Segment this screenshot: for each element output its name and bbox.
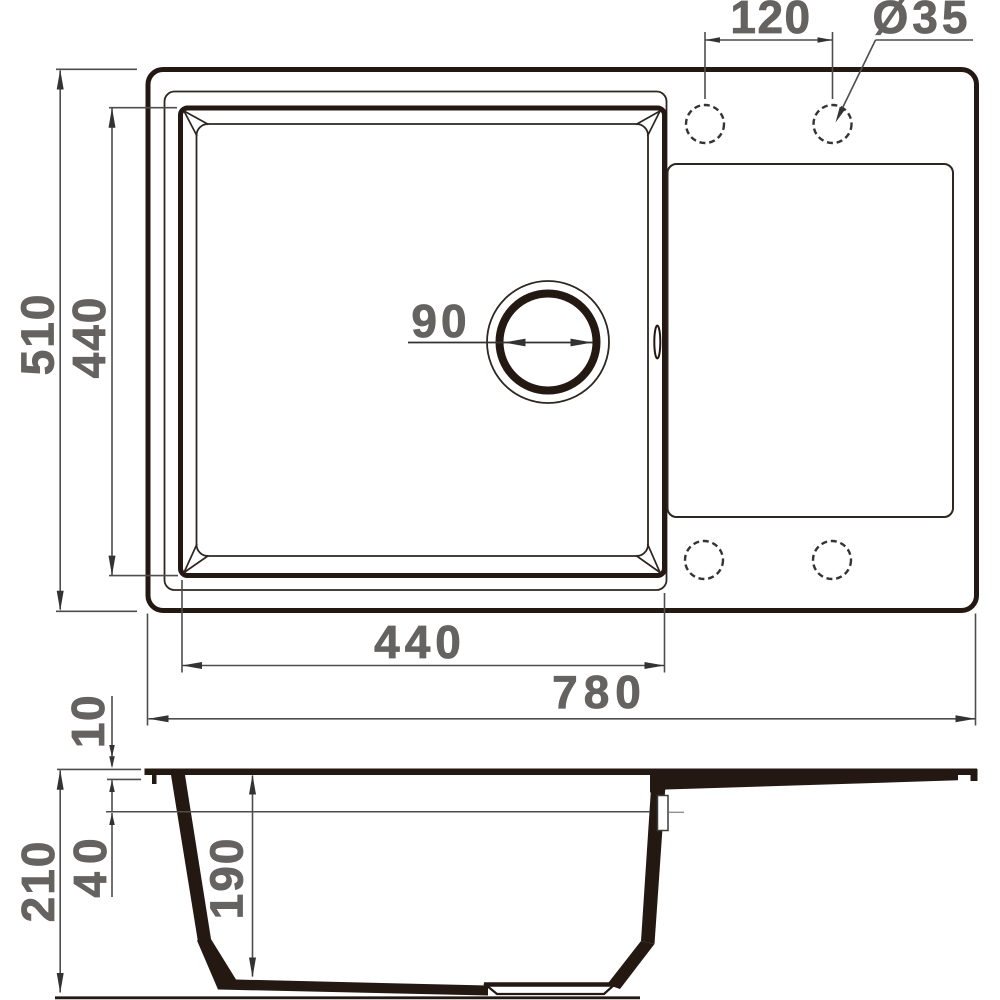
svg-text:440: 440 [374, 616, 466, 668]
svg-text:190: 190 [201, 837, 253, 920]
svg-text:440: 440 [63, 296, 115, 379]
svg-text:510: 510 [12, 293, 64, 376]
svg-text:10: 10 [62, 694, 114, 748]
svg-text:Ø35: Ø35 [873, 0, 972, 43]
svg-text:40: 40 [64, 830, 116, 897]
svg-text:120: 120 [730, 0, 811, 43]
svg-text:90: 90 [411, 295, 470, 347]
svg-text:780: 780 [552, 666, 647, 718]
svg-text:210: 210 [12, 840, 64, 923]
